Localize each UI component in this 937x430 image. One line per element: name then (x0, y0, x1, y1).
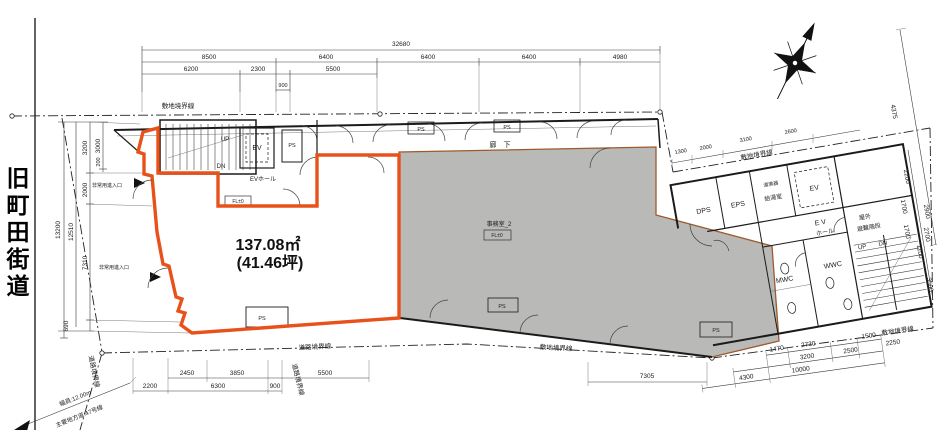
ps-label-top2: PS (503, 125, 511, 131)
wc-fixtures (780, 253, 853, 320)
bottom-dimensions: 2450 3850 5500 2200 6300 900 7305 (133, 358, 707, 394)
dim-900-bottom: 900 (270, 383, 281, 390)
wwc-label: WWC (823, 261, 842, 271)
ps-label-top1: PS (417, 127, 425, 133)
dim-3850: 3850 (230, 370, 245, 377)
ev-hall-label: EVホール (250, 176, 276, 183)
office2-label: 事務室_2 (487, 220, 512, 228)
dim-4300: 4300 (739, 373, 755, 382)
unit-outline (138, 128, 399, 333)
dim-2250: 2250 (885, 338, 901, 347)
dim-5500-top: 5500 (326, 66, 341, 73)
dim-900-top: 900 (278, 83, 287, 89)
room-fl-label: FL±0 (232, 199, 244, 205)
dim-2900: 2900 (922, 204, 931, 220)
ps-label-bottom3: PS (712, 328, 720, 334)
dim-2730: 2730 (801, 340, 817, 349)
dim-2450: 2450 (180, 370, 195, 377)
dim-3200-bottom: 3200 (799, 353, 815, 362)
wing-stairs (853, 229, 929, 315)
dn-label-main: DN (217, 164, 226, 170)
dim-6400-b: 6400 (421, 54, 436, 61)
site-boundary-label-top: 敷地境界線 (162, 101, 195, 110)
leased-unit: 137.08㎡ (41.46坪) 非常用進入口 非常用進入口 (92, 128, 399, 333)
stair-treads (166, 124, 250, 170)
dim-7305: 7305 (640, 373, 655, 380)
road-annotation: 幅員:12.00m 主要地方道:47号線 (14, 377, 136, 430)
road-boundary-label-2: 道路境界線 (290, 363, 307, 397)
dim-2500: 2500 (843, 346, 859, 355)
floorplan-canvas: 旧町田街道 敷地境界線 敷地境界線 敷地境界線 敷地境界線 道路境界線 道路境界… (0, 0, 937, 430)
kitchen-label: 給湯室 (764, 192, 783, 203)
site-boundary-label-right: 敷地境界線 (740, 147, 774, 162)
mwc-label: MWC (776, 275, 794, 285)
top-dimensions: 32680 8500 6400 6400 6400 4980 6200 2300… (142, 41, 660, 112)
road-boundary-label-1: 道路境界線 (298, 341, 331, 352)
dps-label: DPS (696, 207, 712, 216)
ps-label-ev: PS (288, 143, 296, 149)
dim-12510: 12510 (68, 223, 75, 241)
emergency-arrow-icon-1 (134, 178, 145, 188)
dim-2200-bottom: 2200 (143, 383, 158, 390)
dim-3200: 3200 (82, 140, 89, 155)
dim-6400-c: 6400 (522, 54, 537, 61)
dim-200: 200 (96, 157, 102, 166)
dim-6200: 6200 (184, 66, 199, 73)
dim-690: 690 (63, 320, 70, 331)
emergency-entrance-label-2: 非常用進入口 (99, 264, 129, 271)
top-right-dimensions: 1300 2000 3100 2600 (672, 128, 860, 167)
eps-label: EPS (731, 201, 746, 210)
ev-label-wing: EV (809, 184, 820, 193)
escape-stair-label: 避難階段 (856, 221, 881, 233)
dim-32680: 32680 (392, 41, 410, 48)
office2-fl-label: FL±0 (491, 233, 503, 239)
dim-2300: 2300 (251, 66, 266, 73)
dim-6300: 6300 (211, 383, 226, 390)
emergency-entrance-label-1: 非常用進入口 (92, 182, 122, 189)
ev-wing-hall-ev: E V (814, 219, 827, 228)
road-arrow-icon (14, 420, 30, 430)
dim-4375: 4375 (889, 104, 898, 120)
floorplan-drawing: 敷地境界線 敷地境界線 敷地境界線 敷地境界線 道路境界線 道路境界線 道路境界… (0, 0, 937, 430)
dim-5500-bottom: 5500 (318, 370, 333, 377)
dim-3100: 3100 (739, 136, 752, 144)
dim-2600: 2600 (784, 128, 797, 136)
water-heater-label: 湯沸器 (763, 179, 779, 189)
corridor-label: 廊 下 (490, 140, 511, 149)
dim-2000: 2000 (82, 182, 89, 197)
dim-1300: 1300 (674, 148, 687, 156)
dim-13200: 13200 (55, 221, 62, 239)
dim-4980: 4980 (613, 54, 628, 61)
dim-7310: 7310 (82, 255, 89, 270)
north-compass-icon (757, 12, 836, 109)
dim-1700-b: 1700 (902, 224, 911, 240)
site-boundary-label-bottomright: 敷地境界線 (881, 324, 915, 338)
ev-wing-hall-text: ホール (816, 228, 835, 238)
dim-1500: 1500 (861, 332, 877, 341)
dim-6400-a: 6400 (319, 54, 334, 61)
dim-3000: 3000 (95, 138, 102, 153)
ps-label-bottom2: PS (498, 304, 506, 310)
dim-1470: 1470 (769, 345, 785, 354)
unit-area-tsubo: (41.46坪) (237, 254, 304, 272)
dim-8500: 8500 (202, 54, 217, 61)
dim-2000-topright: 2000 (699, 144, 712, 152)
up-label-main: UP (221, 137, 229, 143)
outdoor-label: 屋外 (858, 212, 871, 222)
unit-area-sqm: 137.08㎡ (236, 235, 301, 254)
dim-1700-a: 1700 (899, 199, 908, 215)
site-boundary-label-bottom: 敷地境界線 (540, 342, 573, 353)
ev-label-main: EV (252, 145, 262, 152)
